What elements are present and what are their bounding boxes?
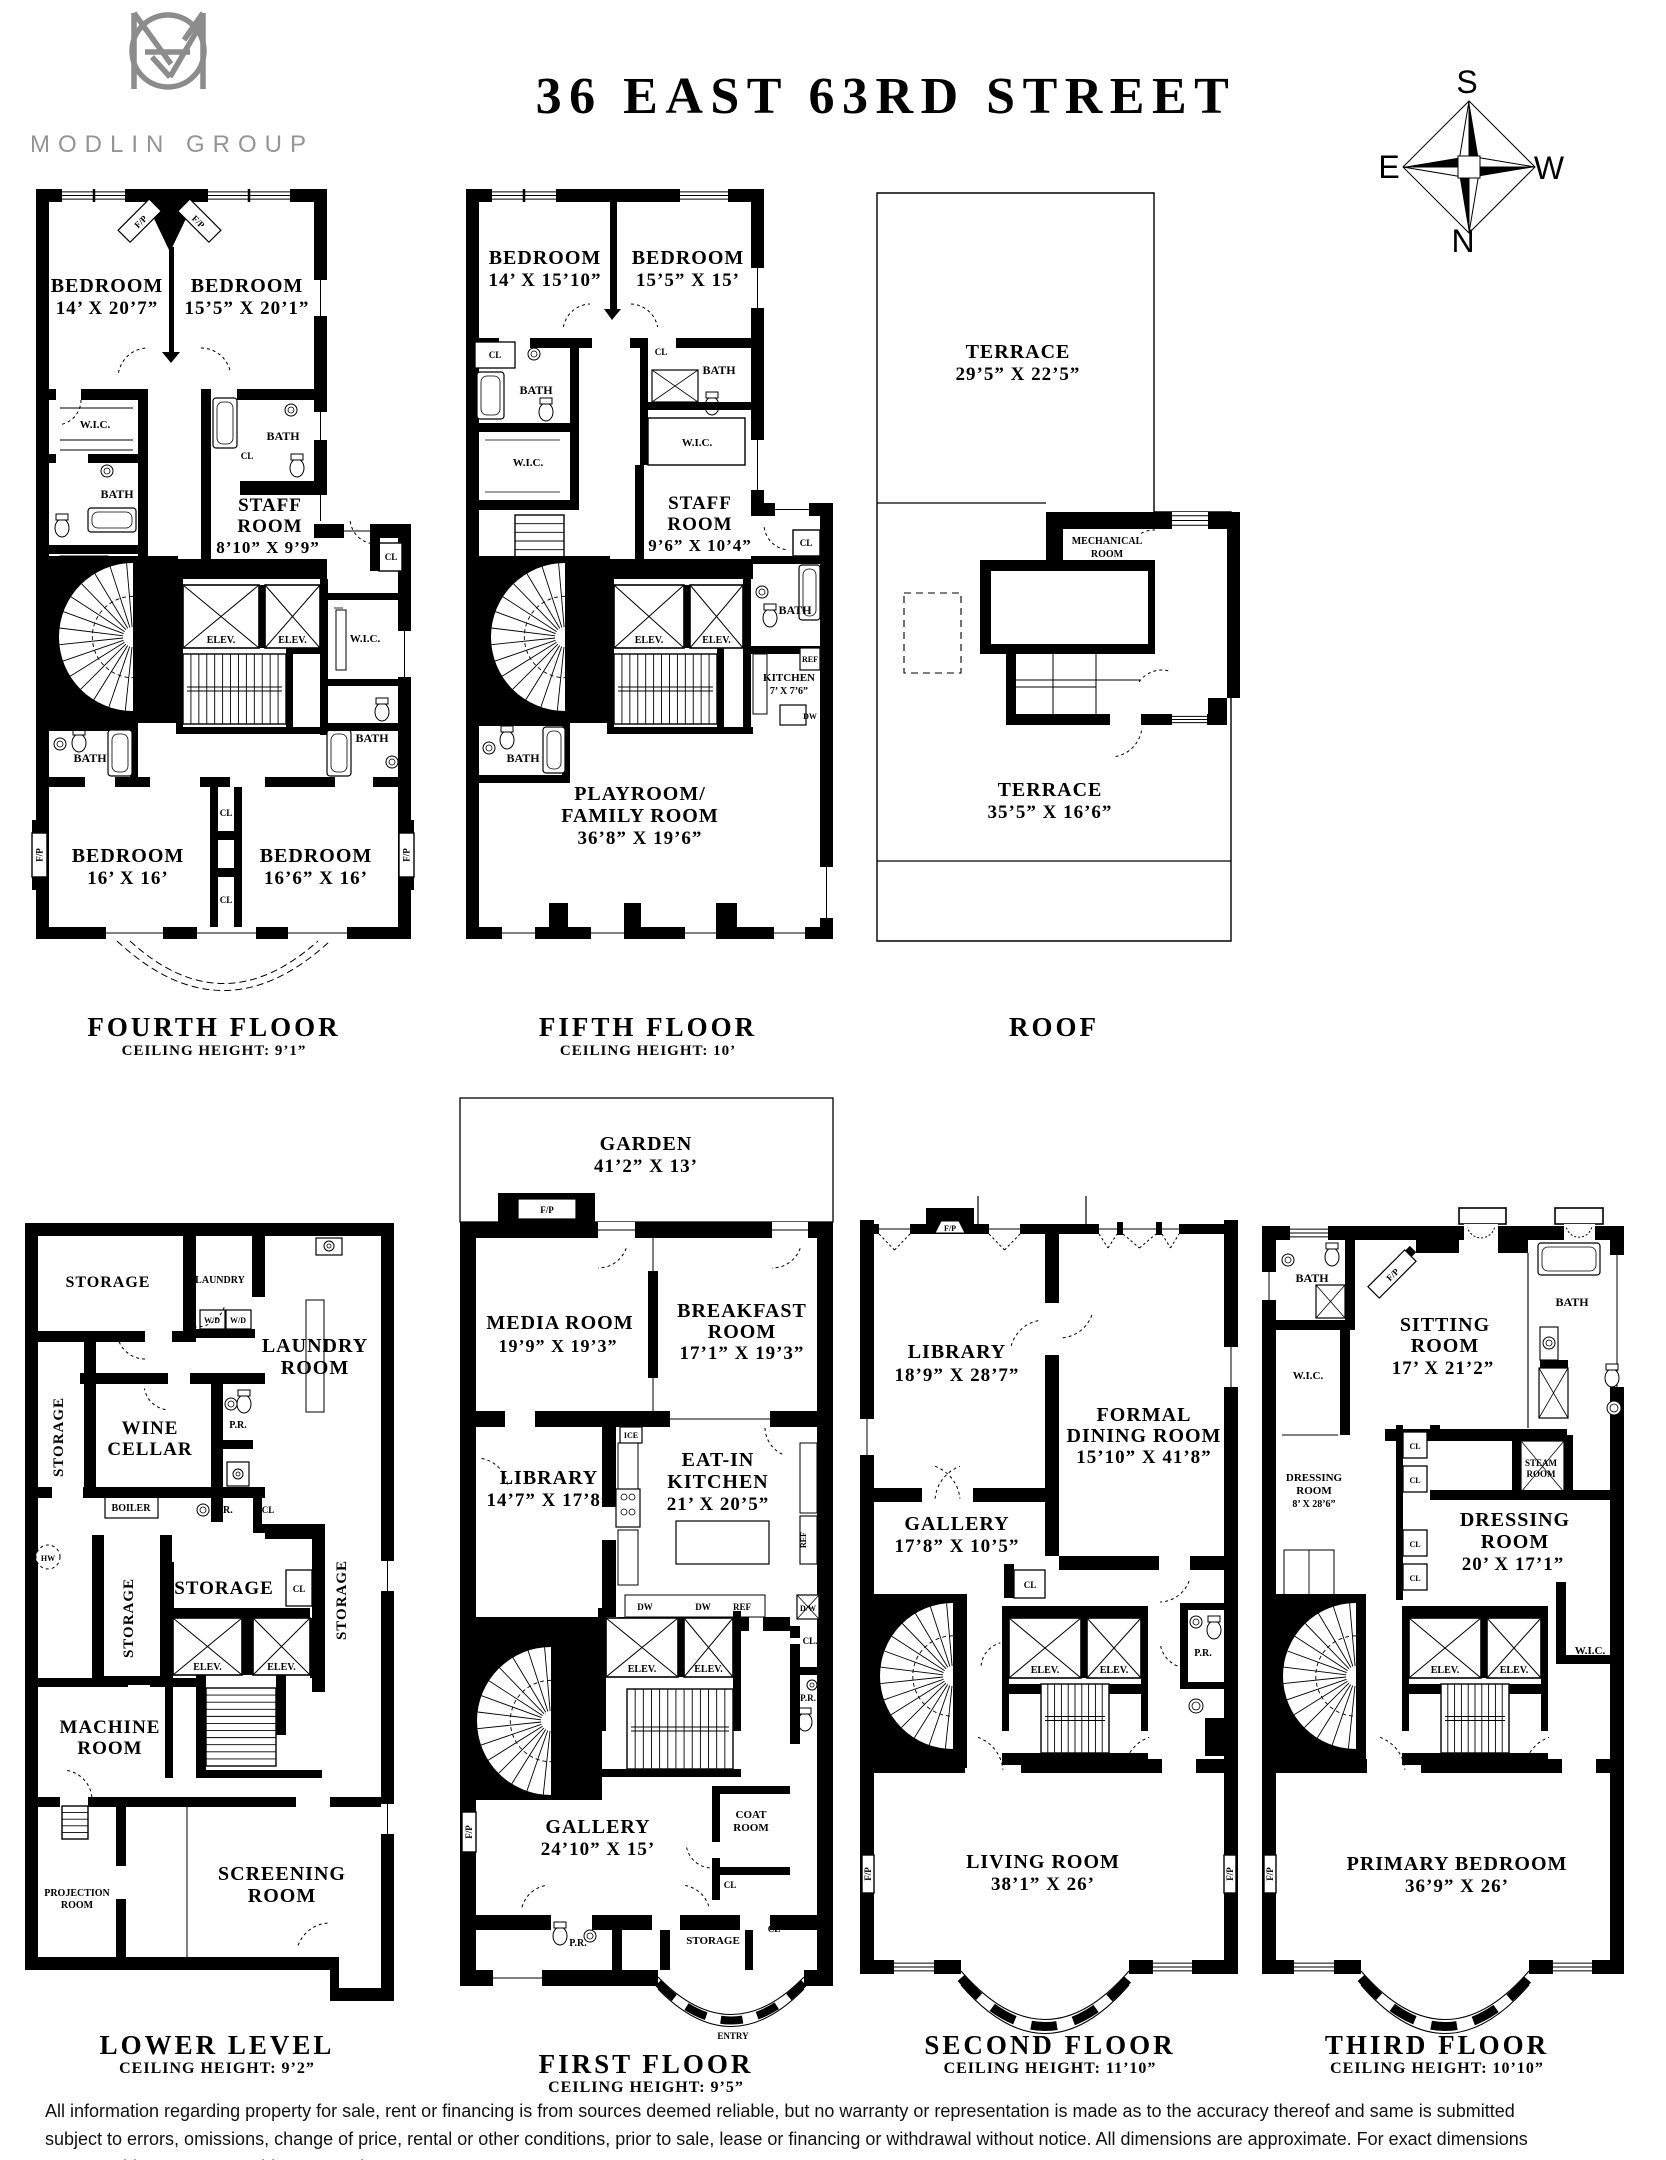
svg-text:36’9” X 26’: 36’9” X 26’ [1405,1876,1509,1897]
svg-text:LOWER LEVEL: LOWER LEVEL [100,2030,335,2060]
svg-text:DW: DW [695,1602,711,1612]
svg-text:F/P: F/P [540,1205,554,1215]
svg-text:F/P: F/P [1225,1867,1235,1881]
svg-text:SECOND FLOOR: SECOND FLOOR [924,2030,1175,2060]
svg-text:ROOM: ROOM [733,1822,769,1834]
svg-text:CL: CL [655,347,668,357]
svg-text:CL: CL [489,350,502,360]
svg-text:CL: CL [1409,1442,1420,1451]
svg-text:THIRD FLOOR: THIRD FLOOR [1325,2030,1549,2060]
svg-text:CL: CL [241,451,254,461]
svg-text:E: E [1378,149,1399,185]
svg-text:ROOM: ROOM [1527,1469,1557,1479]
svg-text:STAFF: STAFF [238,495,302,516]
svg-text:MEDIA ROOM: MEDIA ROOM [486,1312,633,1334]
svg-text:21’ X 20’5”: 21’ X 20’5” [667,1494,769,1515]
svg-text:GALLERY: GALLERY [904,1513,1009,1535]
svg-text:PRIMARY BEDROOM: PRIMARY BEDROOM [1347,1853,1568,1875]
svg-text:CL: CL [293,1584,306,1594]
svg-text:LIBRARY: LIBRARY [500,1467,599,1489]
svg-text:W.I.C.: W.I.C. [1293,1370,1324,1382]
svg-text:29’5” X 22’5”: 29’5” X 22’5” [956,364,1081,385]
svg-text:F/P: F/P [402,848,412,862]
svg-text:ICE: ICE [624,1431,638,1440]
svg-text:S: S [1456,64,1477,100]
svg-text:P.R.: P.R. [800,1693,816,1703]
svg-text:ROOM: ROOM [281,1357,349,1379]
svg-text:ELEV.: ELEV. [1100,1665,1129,1676]
svg-text:BOILER: BOILER [112,1503,152,1514]
svg-text:KITCHEN: KITCHEN [763,672,815,684]
svg-text:SCREENING: SCREENING [218,1863,346,1885]
svg-text:17’ X 21’2”: 17’ X 21’2” [1392,1358,1494,1379]
svg-text:TERRACE: TERRACE [966,341,1071,363]
svg-text:ROOF: ROOF [1009,1012,1099,1042]
svg-text:CELLAR: CELLAR [107,1439,192,1460]
svg-text:W.I.C.: W.I.C. [80,419,111,431]
svg-text:CL: CL [768,1924,781,1934]
svg-text:18’9” X 28’7”: 18’9” X 28’7” [895,1365,1020,1386]
svg-text:ELEV.: ELEV. [278,635,307,646]
svg-text:ROOM: ROOM [248,1885,316,1907]
svg-text:BATH: BATH [1555,1295,1589,1309]
svg-text:ELEV.: ELEV. [193,1662,222,1673]
svg-text:BATH: BATH [778,603,812,617]
svg-text:CEILING HEIGHT: 9’1”: CEILING HEIGHT: 9’1” [122,1043,307,1059]
svg-text:CL: CL [1409,1476,1420,1485]
svg-text:P.R.: P.R. [569,1938,587,1949]
svg-text:BEDROOM: BEDROOM [51,275,164,297]
svg-text:W/D: W/D [230,1316,246,1325]
svg-text:F/P: F/P [944,1224,956,1233]
svg-text:CL: CL [262,1505,275,1515]
svg-text:BATH: BATH [100,487,134,501]
svg-text:CL: CL [1024,1580,1037,1590]
svg-text:CL: CL [1409,1540,1420,1549]
svg-text:F/P: F/P [863,1867,873,1881]
svg-text:W: W [1534,150,1565,186]
svg-text:STORAGE: STORAGE [334,1560,350,1640]
svg-text:FIFTH FLOOR: FIFTH FLOOR [539,1012,757,1042]
svg-text:D/W: D/W [800,1604,816,1613]
svg-text:CEILING HEIGHT: 9’2”: CEILING HEIGHT: 9’2” [119,2060,315,2077]
svg-text:LIVING ROOM: LIVING ROOM [966,1851,1120,1873]
svg-text:20’ X 17’1”: 20’ X 17’1” [1462,1554,1564,1575]
svg-text:COAT: COAT [736,1809,768,1821]
svg-text:STAFF: STAFF [668,493,732,514]
svg-text:subject to errors, omissions,: subject to errors, omissions, change of … [45,2129,1528,2149]
svg-text:ROOM: ROOM [1481,1531,1549,1553]
svg-text:BREAKFAST: BREAKFAST [677,1300,807,1322]
svg-text:ROOM: ROOM [1296,1485,1332,1497]
svg-text:19’9” X 19’3”: 19’9” X 19’3” [499,1336,618,1356]
svg-text:CEILING HEIGHT: 11’10”: CEILING HEIGHT: 11’10” [944,2060,1157,2077]
svg-text:DRESSING: DRESSING [1460,1509,1570,1531]
svg-text:LAUNDRY: LAUNDRY [262,1335,368,1357]
svg-text:MODLIN GROUP: MODLIN GROUP [30,131,314,158]
svg-text:BATH: BATH [506,751,540,765]
svg-text:FIRST FLOOR: FIRST FLOOR [539,2049,754,2079]
svg-text:CL: CL [800,538,813,548]
svg-text:36 EAST 63RD STREET: 36 EAST 63RD STREET [536,68,1237,125]
svg-text:CL: CL [724,1880,737,1890]
svg-text:DW: DW [803,712,817,721]
svg-text:MACHINE: MACHINE [60,1717,161,1738]
svg-text:ROOM: ROOM [61,1900,94,1911]
svg-text:KITCHEN: KITCHEN [667,1471,768,1493]
svg-text:SITTING: SITTING [1400,1314,1490,1336]
svg-text:17’8” X 10’5”: 17’8” X 10’5” [895,1536,1020,1557]
svg-text:REF: REF [733,1602,752,1612]
svg-text:14’7” X 17’8”: 14’7” X 17’8” [487,1490,612,1511]
svg-text:ENTRY: ENTRY [717,2031,749,2041]
svg-text:BATH: BATH [519,383,553,397]
svg-text:REF: REF [799,1532,808,1548]
svg-text:ROOM: ROOM [708,1321,776,1343]
svg-text:ROOM: ROOM [667,514,732,535]
svg-text:DW: DW [637,1602,653,1612]
svg-text:F/P: F/P [35,848,45,862]
svg-text:ELEV.: ELEV. [207,635,236,646]
svg-text:CEILING HEIGHT: 9’5”: CEILING HEIGHT: 9’5” [548,2079,744,2096]
svg-text:MECHANICAL: MECHANICAL [1072,536,1143,547]
svg-text:ROOM: ROOM [1411,1335,1479,1357]
svg-text:STORAGE: STORAGE [174,1578,274,1599]
svg-text:14’ X 15’10”: 14’ X 15’10” [489,270,602,291]
svg-text:CEILING HEIGHT: 10’10”: CEILING HEIGHT: 10’10” [1330,2060,1544,2077]
svg-text:BEDROOM: BEDROOM [72,845,185,867]
svg-text:BATH: BATH [266,429,300,443]
svg-text:PLAYROOM/: PLAYROOM/ [574,783,706,805]
svg-text:P.R.: P.R. [1194,1648,1212,1659]
svg-text:F/P: F/P [1265,1867,1275,1881]
svg-text:WINE: WINE [122,1418,179,1439]
svg-text:FAMILY ROOM: FAMILY ROOM [561,805,718,827]
svg-text:14’ X 20’7”: 14’ X 20’7” [56,298,158,319]
svg-text:STORAGE: STORAGE [121,1578,137,1658]
svg-text:N: N [1451,223,1474,259]
svg-text:BEDROOM: BEDROOM [191,275,304,297]
svg-text:CL: CL [220,808,233,818]
svg-text:CL: CL [385,552,398,562]
svg-text:F/P: F/P [464,1825,474,1839]
svg-text:ROOM: ROOM [1091,549,1124,560]
svg-text:BATH: BATH [702,363,736,377]
svg-text:STORAGE: STORAGE [686,1935,740,1947]
svg-text:ELEV.: ELEV. [267,1662,296,1673]
svg-text:8’10” X 9’9”: 8’10” X 9’9” [216,538,320,557]
svg-text:16’6” X 16’: 16’6” X 16’ [264,868,368,889]
svg-text:ELEV.: ELEV. [635,635,664,646]
svg-text:CL: CL [220,895,233,905]
svg-text:15’10” X 41’8”: 15’10” X 41’8” [1076,1447,1211,1468]
svg-text:ELEV.: ELEV. [628,1664,657,1675]
svg-text:17’1” X 19’3”: 17’1” X 19’3” [680,1343,805,1364]
svg-text:35’5” X 16’6”: 35’5” X 16’6” [988,802,1113,823]
svg-text:P.R.: P.R. [215,1505,233,1516]
svg-text:38’1” X 26’: 38’1” X 26’ [991,1874,1095,1895]
svg-text:DINING ROOM: DINING ROOM [1067,1425,1222,1447]
svg-text:W.I.C.: W.I.C. [682,437,713,449]
svg-text:BATH: BATH [1295,1271,1329,1285]
svg-text:41’2” X 13’: 41’2” X 13’ [594,1156,698,1177]
svg-text:LAUNDRY: LAUNDRY [195,1275,245,1286]
svg-text:BEDROOM: BEDROOM [489,247,602,269]
svg-text:REF: REF [802,655,818,664]
svg-text:P.R.: P.R. [229,1420,247,1431]
svg-text:8’ X 28’6”: 8’ X 28’6” [1292,1499,1335,1510]
svg-text:CL: CL [1409,1574,1420,1583]
svg-text:HW: HW [41,1554,55,1563]
svg-text:BATH: BATH [73,751,107,765]
svg-text:ELEV.: ELEV. [1500,1665,1529,1676]
svg-text:ELEV.: ELEV. [702,635,731,646]
svg-text:24’10” X 15’: 24’10” X 15’ [541,1839,655,1860]
svg-text:W.I.C.: W.I.C. [350,633,381,645]
svg-text:LIBRARY: LIBRARY [908,1341,1007,1363]
svg-text:36’8” X 19’6”: 36’8” X 19’6” [578,828,703,849]
svg-text:DRESSING: DRESSING [1286,1472,1343,1484]
svg-text:BEDROOM: BEDROOM [632,247,745,269]
svg-text:ROOM: ROOM [77,1738,142,1759]
svg-text:PROJECTION: PROJECTION [44,1888,110,1899]
svg-text:GALLERY: GALLERY [545,1816,650,1838]
svg-text:All information regarding prop: All information regarding property for s… [45,2101,1515,2121]
svg-text:EAT-IN: EAT-IN [682,1449,755,1471]
svg-text:FORMAL: FORMAL [1097,1404,1192,1426]
svg-text:CEILING HEIGHT: 10’: CEILING HEIGHT: 10’ [560,1043,736,1059]
svg-text:STEAM: STEAM [1525,1458,1558,1468]
svg-text:TERRACE: TERRACE [998,779,1103,801]
svg-text:GARDEN: GARDEN [600,1133,693,1155]
svg-text:ROOM: ROOM [237,516,302,537]
svg-text:7’ X 7’6”: 7’ X 7’6” [770,686,808,697]
svg-text:ELEV.: ELEV. [694,1664,723,1675]
svg-text:15’5” X 20’1”: 15’5” X 20’1” [185,298,310,319]
svg-text:STORAGE: STORAGE [51,1397,67,1477]
svg-text:STORAGE: STORAGE [66,1274,151,1291]
svg-text:CL.: CL. [803,1636,818,1646]
svg-text:BATH: BATH [355,731,389,745]
svg-text:FOURTH FLOOR: FOURTH FLOOR [87,1012,340,1042]
svg-text:ELEV.: ELEV. [1031,1665,1060,1676]
svg-text:9’6” X 10’4”: 9’6” X 10’4” [648,536,752,555]
svg-text:16’ X 16’: 16’ X 16’ [87,868,168,889]
svg-text:ELEV.: ELEV. [1431,1665,1460,1676]
svg-text:W.I.C.: W.I.C. [513,457,544,469]
svg-text:BEDROOM: BEDROOM [260,845,373,867]
svg-text:15’5” X 15’: 15’5” X 15’ [636,270,740,291]
